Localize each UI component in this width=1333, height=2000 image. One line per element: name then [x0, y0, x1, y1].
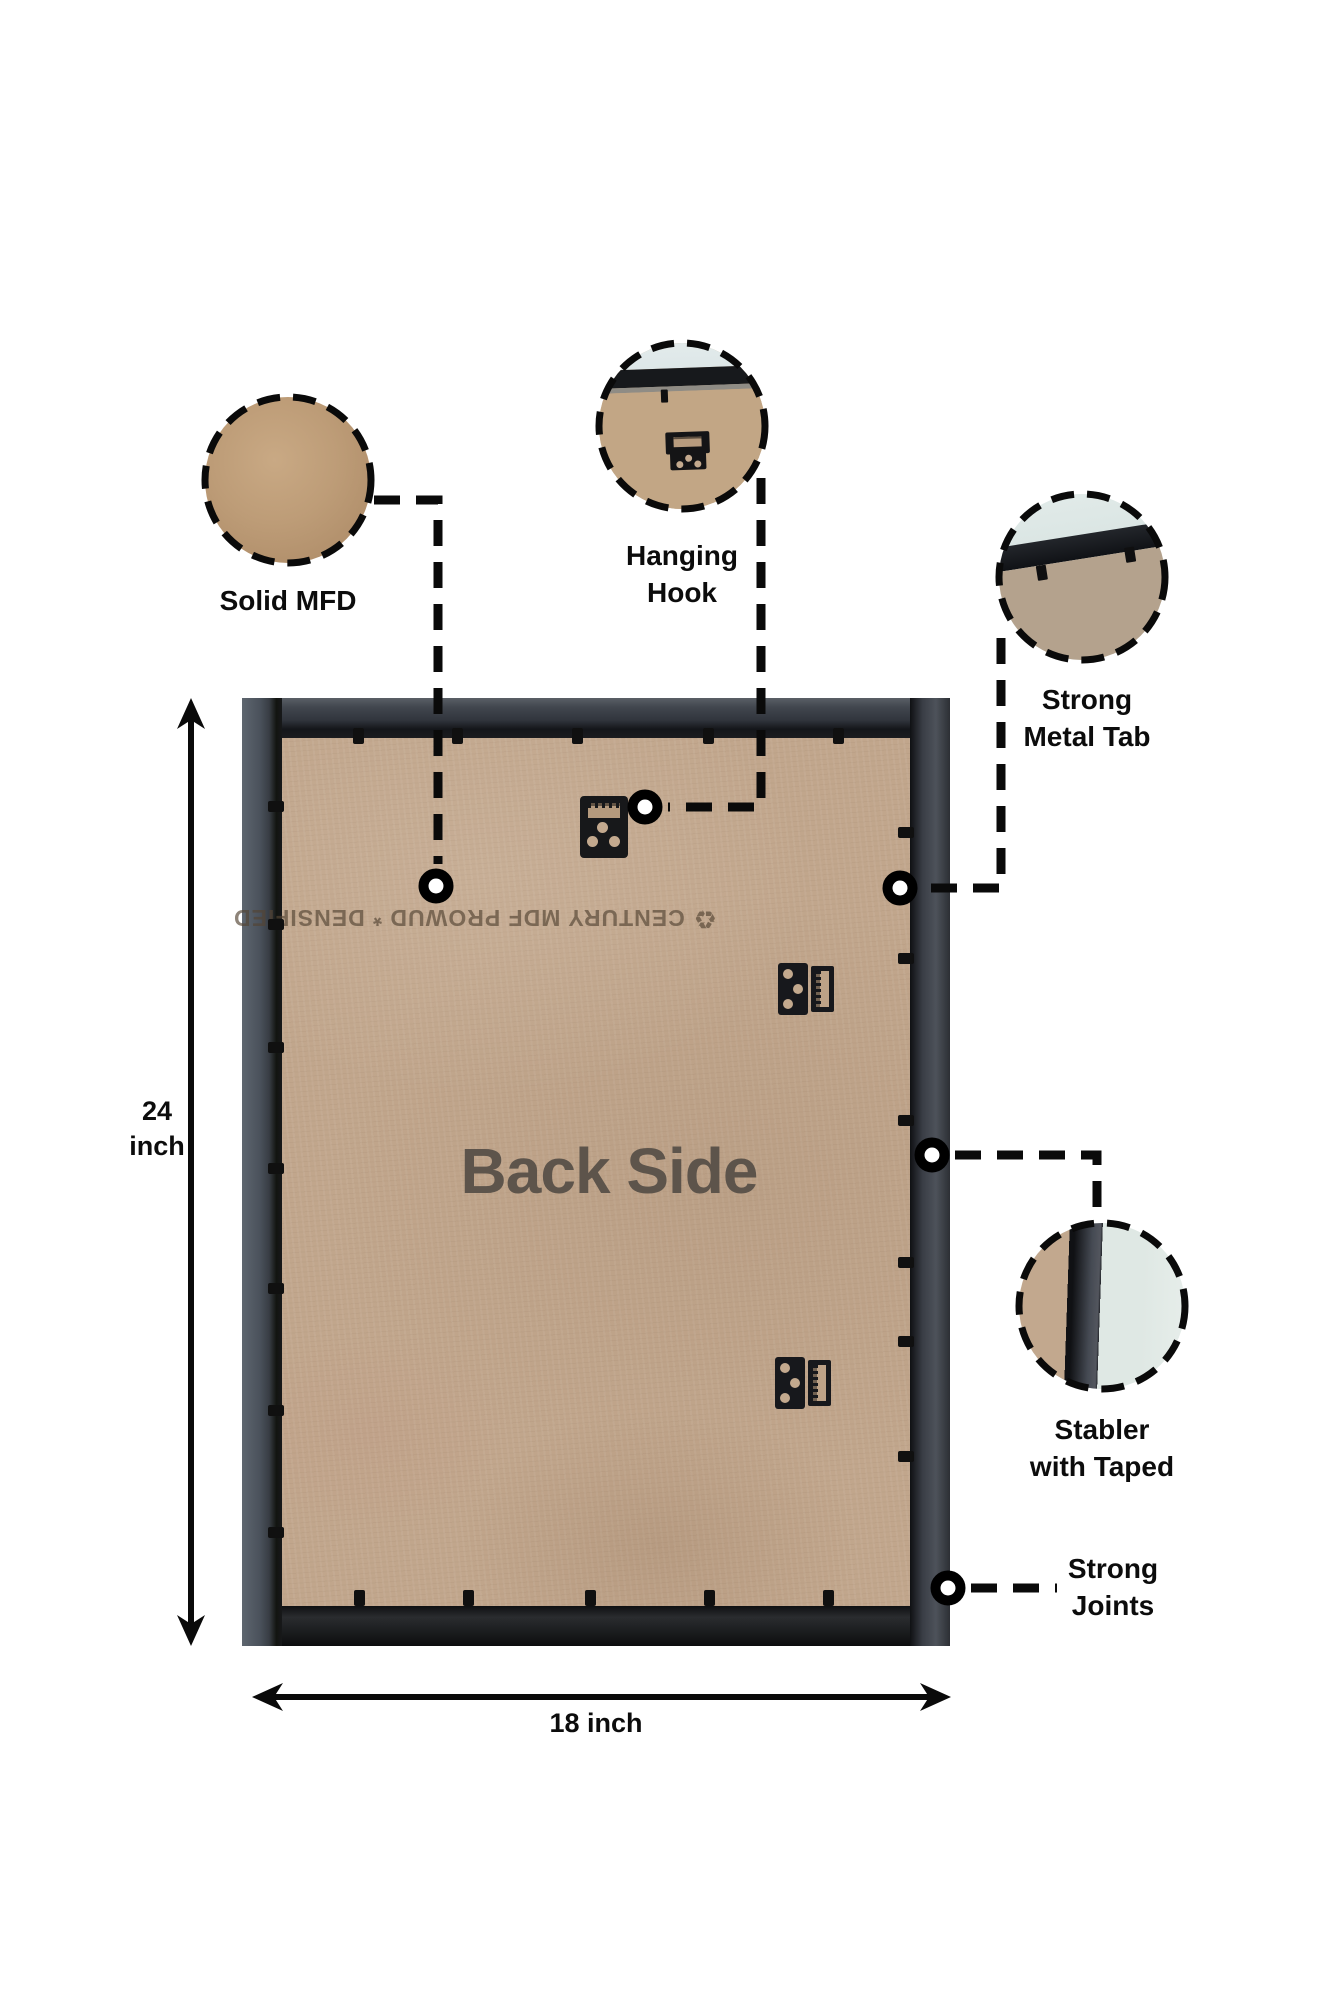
arrowhead-up	[177, 698, 205, 729]
hinge-hole	[780, 1393, 790, 1403]
metal-tab	[1124, 547, 1136, 563]
callout-circle-stabler	[1019, 1223, 1185, 1389]
label-strong-metal-tab: Strong Metal Tab	[987, 682, 1187, 756]
retainer-tab	[898, 953, 914, 964]
hinge-slot-plate	[808, 1360, 831, 1406]
retainer-tab	[353, 728, 364, 744]
retainer-tab	[704, 1590, 715, 1606]
retainer-tab	[898, 1115, 914, 1126]
label-solid-mfd: Solid MFD	[188, 583, 388, 620]
back-side-title: Back Side	[409, 1134, 809, 1208]
product-back-side-infographic: ♻CENTURY MDF PROWUD * DENSIFIED Back Sid…	[0, 0, 1333, 2000]
height-arrow	[177, 698, 205, 1646]
retainer-tab	[268, 1042, 284, 1053]
retainer-tab	[354, 1590, 365, 1606]
label-width-dimension: 18 inch	[496, 1706, 696, 1742]
label-stabler: Stabler with Taped	[982, 1412, 1222, 1486]
frame-right-moulding	[910, 698, 950, 1646]
connector-stabler	[955, 1155, 1097, 1219]
retainer-tab	[585, 1590, 596, 1606]
arrowhead-left	[252, 1683, 283, 1711]
hinge-leaf	[775, 1357, 805, 1409]
retainer-tab	[268, 1283, 284, 1294]
hinge-hole	[783, 969, 793, 979]
hinge-hole	[793, 984, 803, 994]
frame-side-profile	[1019, 1223, 1185, 1389]
label-hanging-hook: Hanging Hook	[582, 538, 782, 612]
recycle-icon: ♻	[693, 903, 717, 933]
hook-hole	[597, 822, 608, 833]
hook-slot	[588, 803, 620, 818]
hinge-leaf	[778, 963, 808, 1015]
hinge-hole	[783, 999, 793, 1009]
retainer-tab	[898, 827, 914, 838]
callout-circle-solid-mfd	[205, 397, 371, 563]
hanging-hook-hardware	[580, 796, 628, 858]
retainer-tab	[572, 728, 583, 744]
hanging-hook-hardware-inset	[665, 431, 710, 473]
hinge-hole	[790, 1378, 800, 1388]
label-strong-joints: Strong Joints	[1023, 1551, 1203, 1625]
retainer-tab	[268, 1405, 284, 1416]
retainer-tab	[703, 728, 714, 744]
retainer-tab	[661, 389, 668, 402]
frame-bottom-moulding	[242, 1606, 950, 1646]
metal-tab	[1036, 565, 1048, 581]
arrowhead-right	[920, 1683, 951, 1711]
retainer-tab	[452, 728, 463, 744]
retainer-tab	[833, 728, 844, 744]
retainer-tab	[268, 1163, 284, 1174]
watermark-text: CENTURY MDF PROWUD * DENSIFIED	[233, 905, 685, 931]
hinge-hardware-top	[778, 963, 834, 1015]
label-height-dimension: 24 inch	[97, 1094, 217, 1164]
hinge-hole	[780, 1363, 790, 1373]
retainer-tab	[268, 1527, 284, 1538]
retainer-tab	[268, 919, 284, 930]
arrowhead-down	[177, 1615, 205, 1646]
retainer-tab	[898, 1336, 914, 1347]
mdf-brand-watermark: ♻CENTURY MDF PROWUD * DENSIFIED	[257, 898, 717, 938]
callout-circle-hanging-hook	[599, 343, 765, 509]
retainer-tab	[268, 801, 284, 812]
callout-circle-strong-metal-tab	[999, 494, 1165, 660]
hinge-slot-plate	[811, 966, 834, 1012]
hinge-hardware-bottom	[775, 1357, 831, 1409]
hook-hole	[609, 836, 620, 847]
hook-hole	[587, 836, 598, 847]
retainer-tab	[898, 1451, 914, 1462]
retainer-tab	[463, 1590, 474, 1606]
retainer-tab	[823, 1590, 834, 1606]
retainer-tab	[898, 1257, 914, 1268]
